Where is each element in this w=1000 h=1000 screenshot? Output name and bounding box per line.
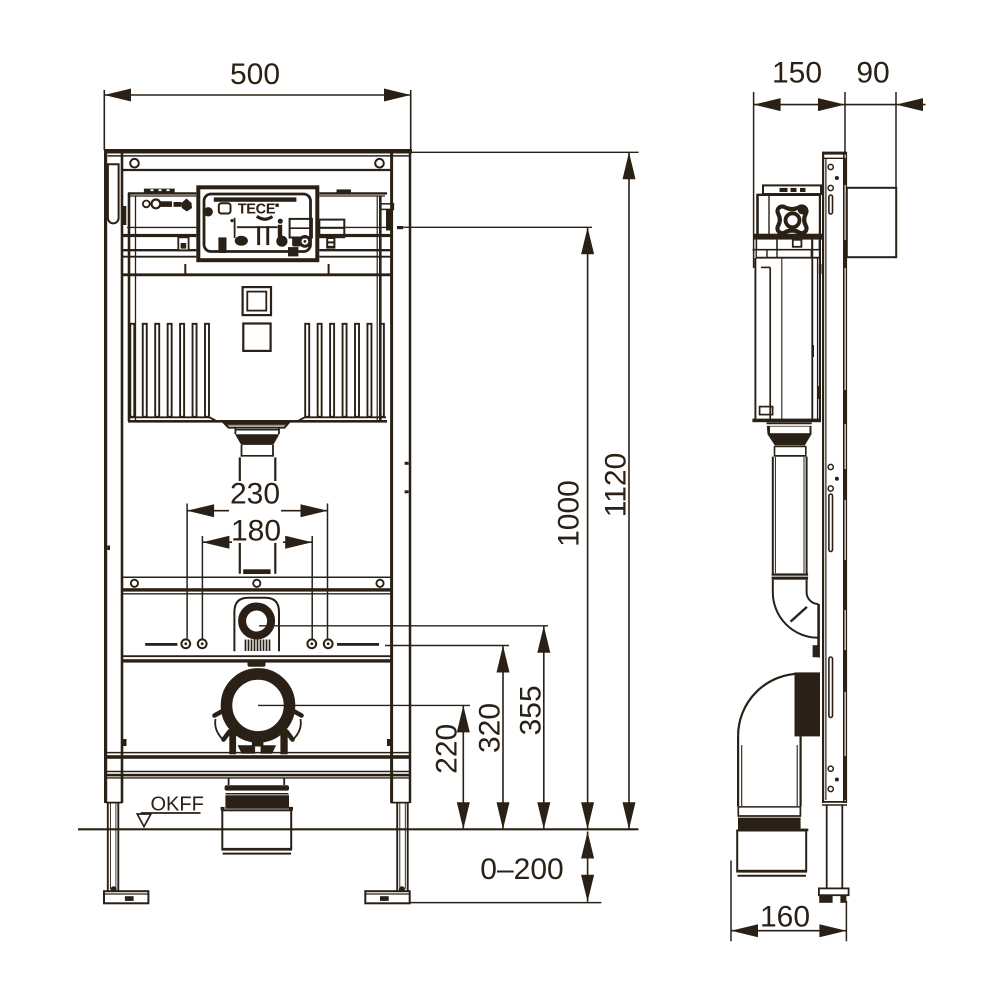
svg-text:230: 230 (230, 478, 280, 511)
svg-text:180: 180 (231, 514, 281, 547)
svg-text:160: 160 (760, 901, 810, 934)
svg-text:0–200: 0–200 (480, 853, 563, 886)
svg-text:220: 220 (431, 724, 464, 774)
svg-text:500: 500 (230, 58, 280, 91)
svg-text:1120: 1120 (600, 453, 633, 518)
svg-text:TECE: TECE (238, 201, 276, 217)
svg-text:320: 320 (473, 703, 506, 753)
svg-text:1000: 1000 (553, 480, 586, 547)
svg-text:90: 90 (856, 56, 889, 89)
svg-text:150: 150 (772, 56, 822, 89)
svg-text:355: 355 (514, 685, 547, 735)
